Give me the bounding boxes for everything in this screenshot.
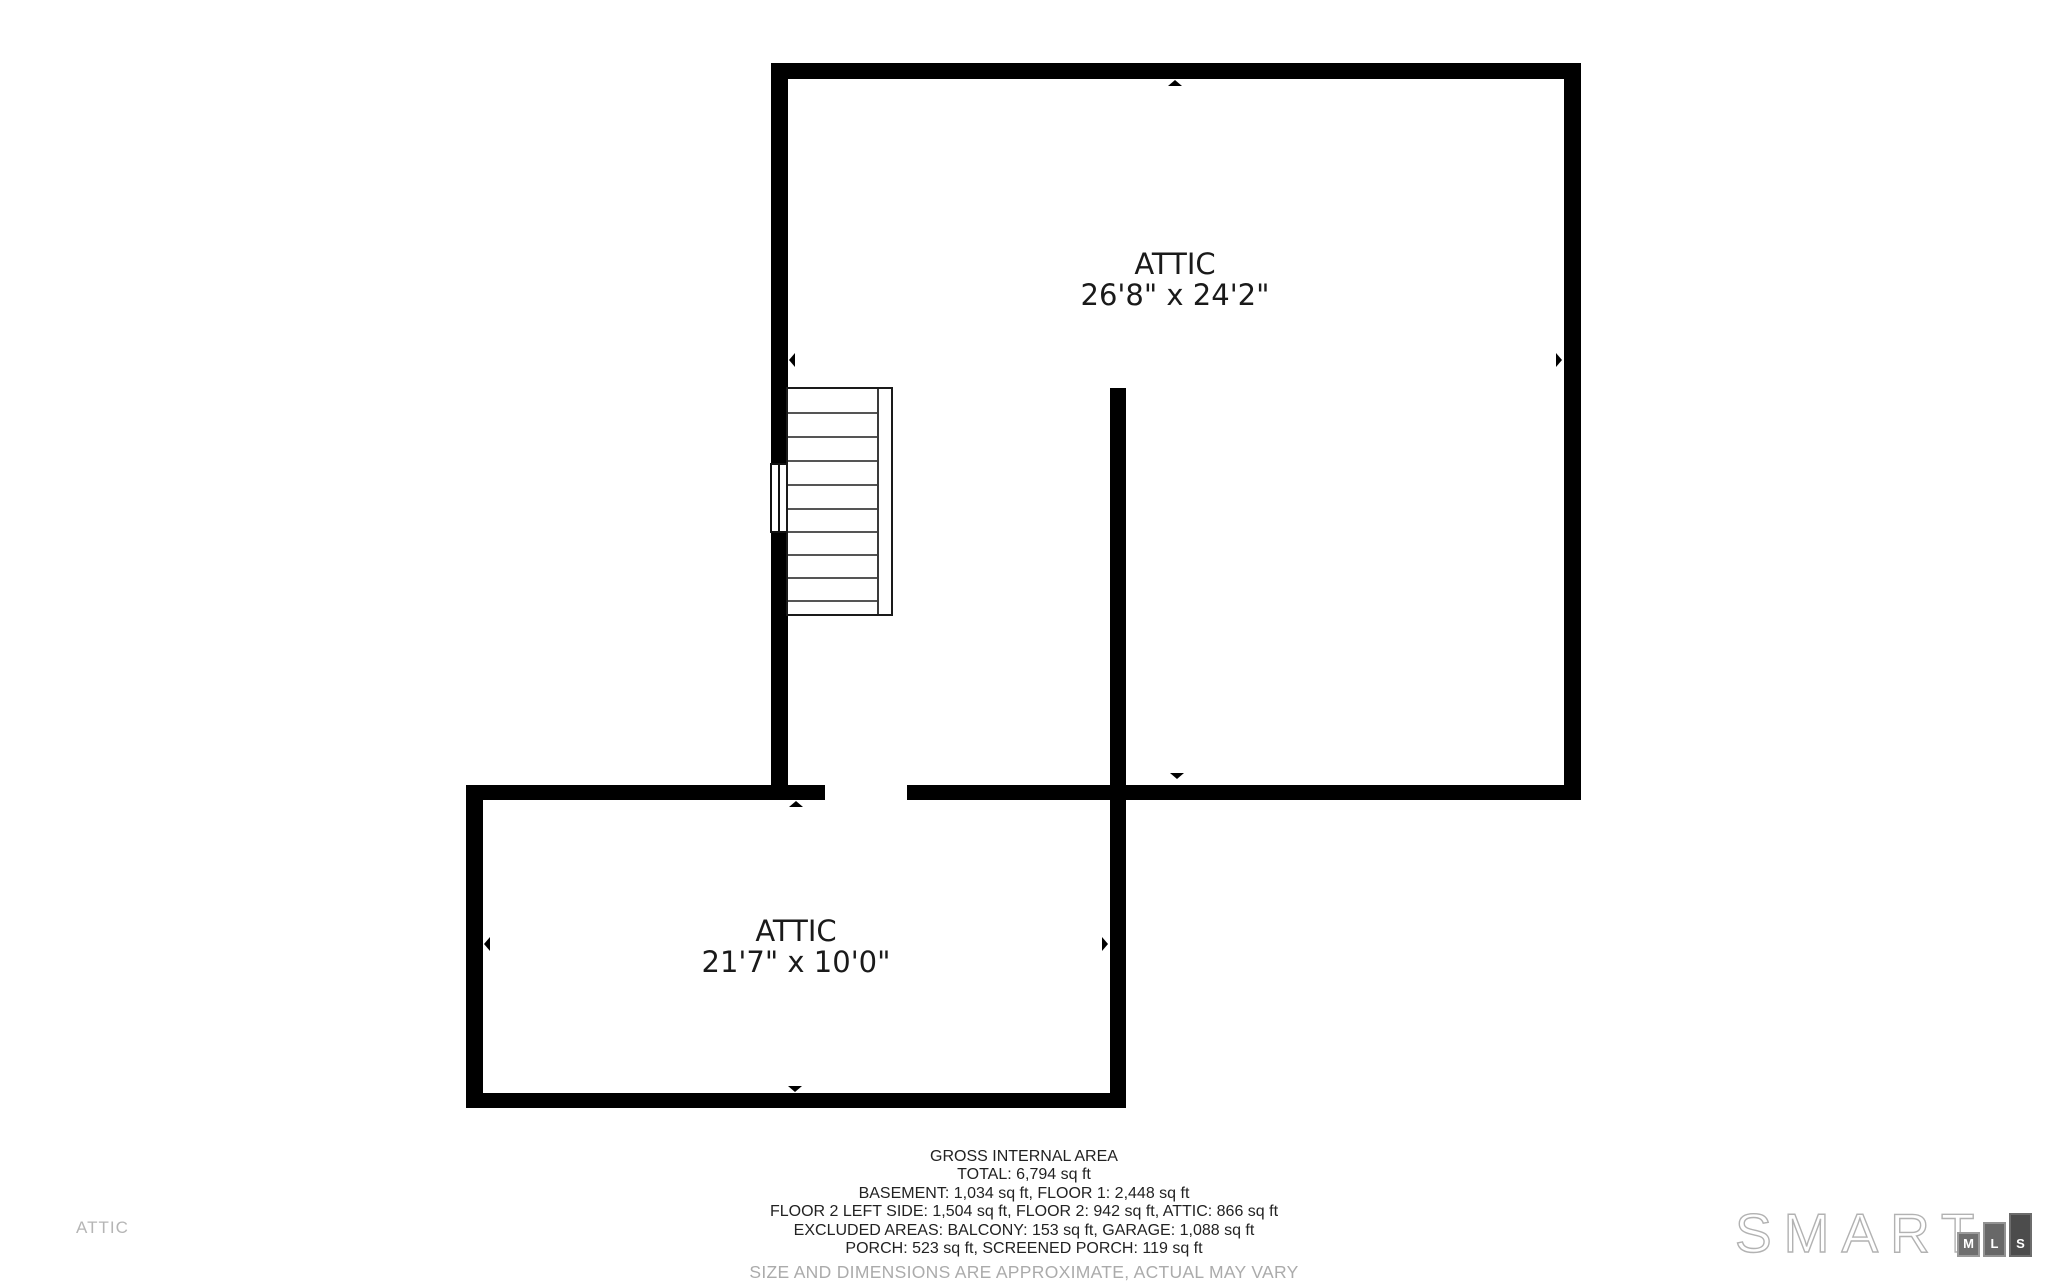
smartmls-logo-bar-l: L [1983,1222,2006,1257]
smartmls-logo-bar-m: M [1957,1232,1980,1257]
floorplan-canvas: ATTIC 26'8" x 24'2" ATTIC 21'7" x 10'0" [0,0,2048,1279]
dimension-marker-left-small [484,937,490,951]
area-summary-line: FLOOR 2 LEFT SIDE: 1,504 sq ft, FLOOR 2:… [749,1203,1298,1221]
room-dimensions: 21'7" x 10'0" [702,947,891,978]
smartmls-logo-bar-s: S [2009,1213,2032,1257]
wall-left-small-room [466,785,483,1108]
dimension-marker-bottom-large [1170,773,1184,779]
room-label-small-attic: ATTIC 21'7" x 10'0" [702,916,891,978]
area-summary-total: TOTAL: 6,794 sq ft [749,1166,1298,1184]
room-name: ATTIC [702,916,891,947]
area-summary-line: PORCH: 523 sq ft, SCREENED PORCH: 119 sq… [749,1240,1298,1258]
area-summary-line: EXCLUDED AREAS: BALCONY: 153 sq ft, GARA… [749,1222,1298,1240]
room-label-large-attic: ATTIC 26'8" x 24'2" [1081,249,1270,311]
dimension-marker-right-large [1556,353,1562,367]
wall-top-large-room [771,63,1581,79]
smartmls-logo: SMART M L S [1735,1206,2035,1261]
wall-horizontal-left-segment [466,785,825,800]
area-summary-title: GROSS INTERNAL AREA [749,1148,1298,1166]
room-name: ATTIC [1081,249,1270,280]
smartmls-logo-wordmark: SMART [1735,1206,1987,1261]
wall-bottom-small-room [466,1093,1126,1108]
room-dimensions: 26'8" x 24'2" [1081,280,1270,311]
stair-stringer-line [877,389,879,614]
area-summary: GROSS INTERNAL AREA TOTAL: 6,794 sq ft B… [749,1148,1298,1282]
dimension-marker-top-small [789,801,803,807]
floor-name-label: ATTIC [76,1218,129,1238]
dimension-marker-right-small [1102,937,1108,951]
window-pane-line [778,465,780,531]
size-disclaimer: SIZE AND DIMENSIONS ARE APPROXIMATE, ACT… [749,1263,1298,1281]
staircase [786,387,893,616]
dimension-marker-left-large [789,353,795,367]
area-summary-line: BASEMENT: 1,034 sq ft, FLOOR 1: 2,448 sq… [749,1185,1298,1203]
dimension-marker-top-large [1168,80,1182,86]
wall-interior-vertical [1110,388,1126,1108]
wall-right-large-room [1564,63,1581,800]
dimension-marker-bottom-small [788,1086,802,1092]
wall-horizontal-right-segment [907,785,1581,800]
